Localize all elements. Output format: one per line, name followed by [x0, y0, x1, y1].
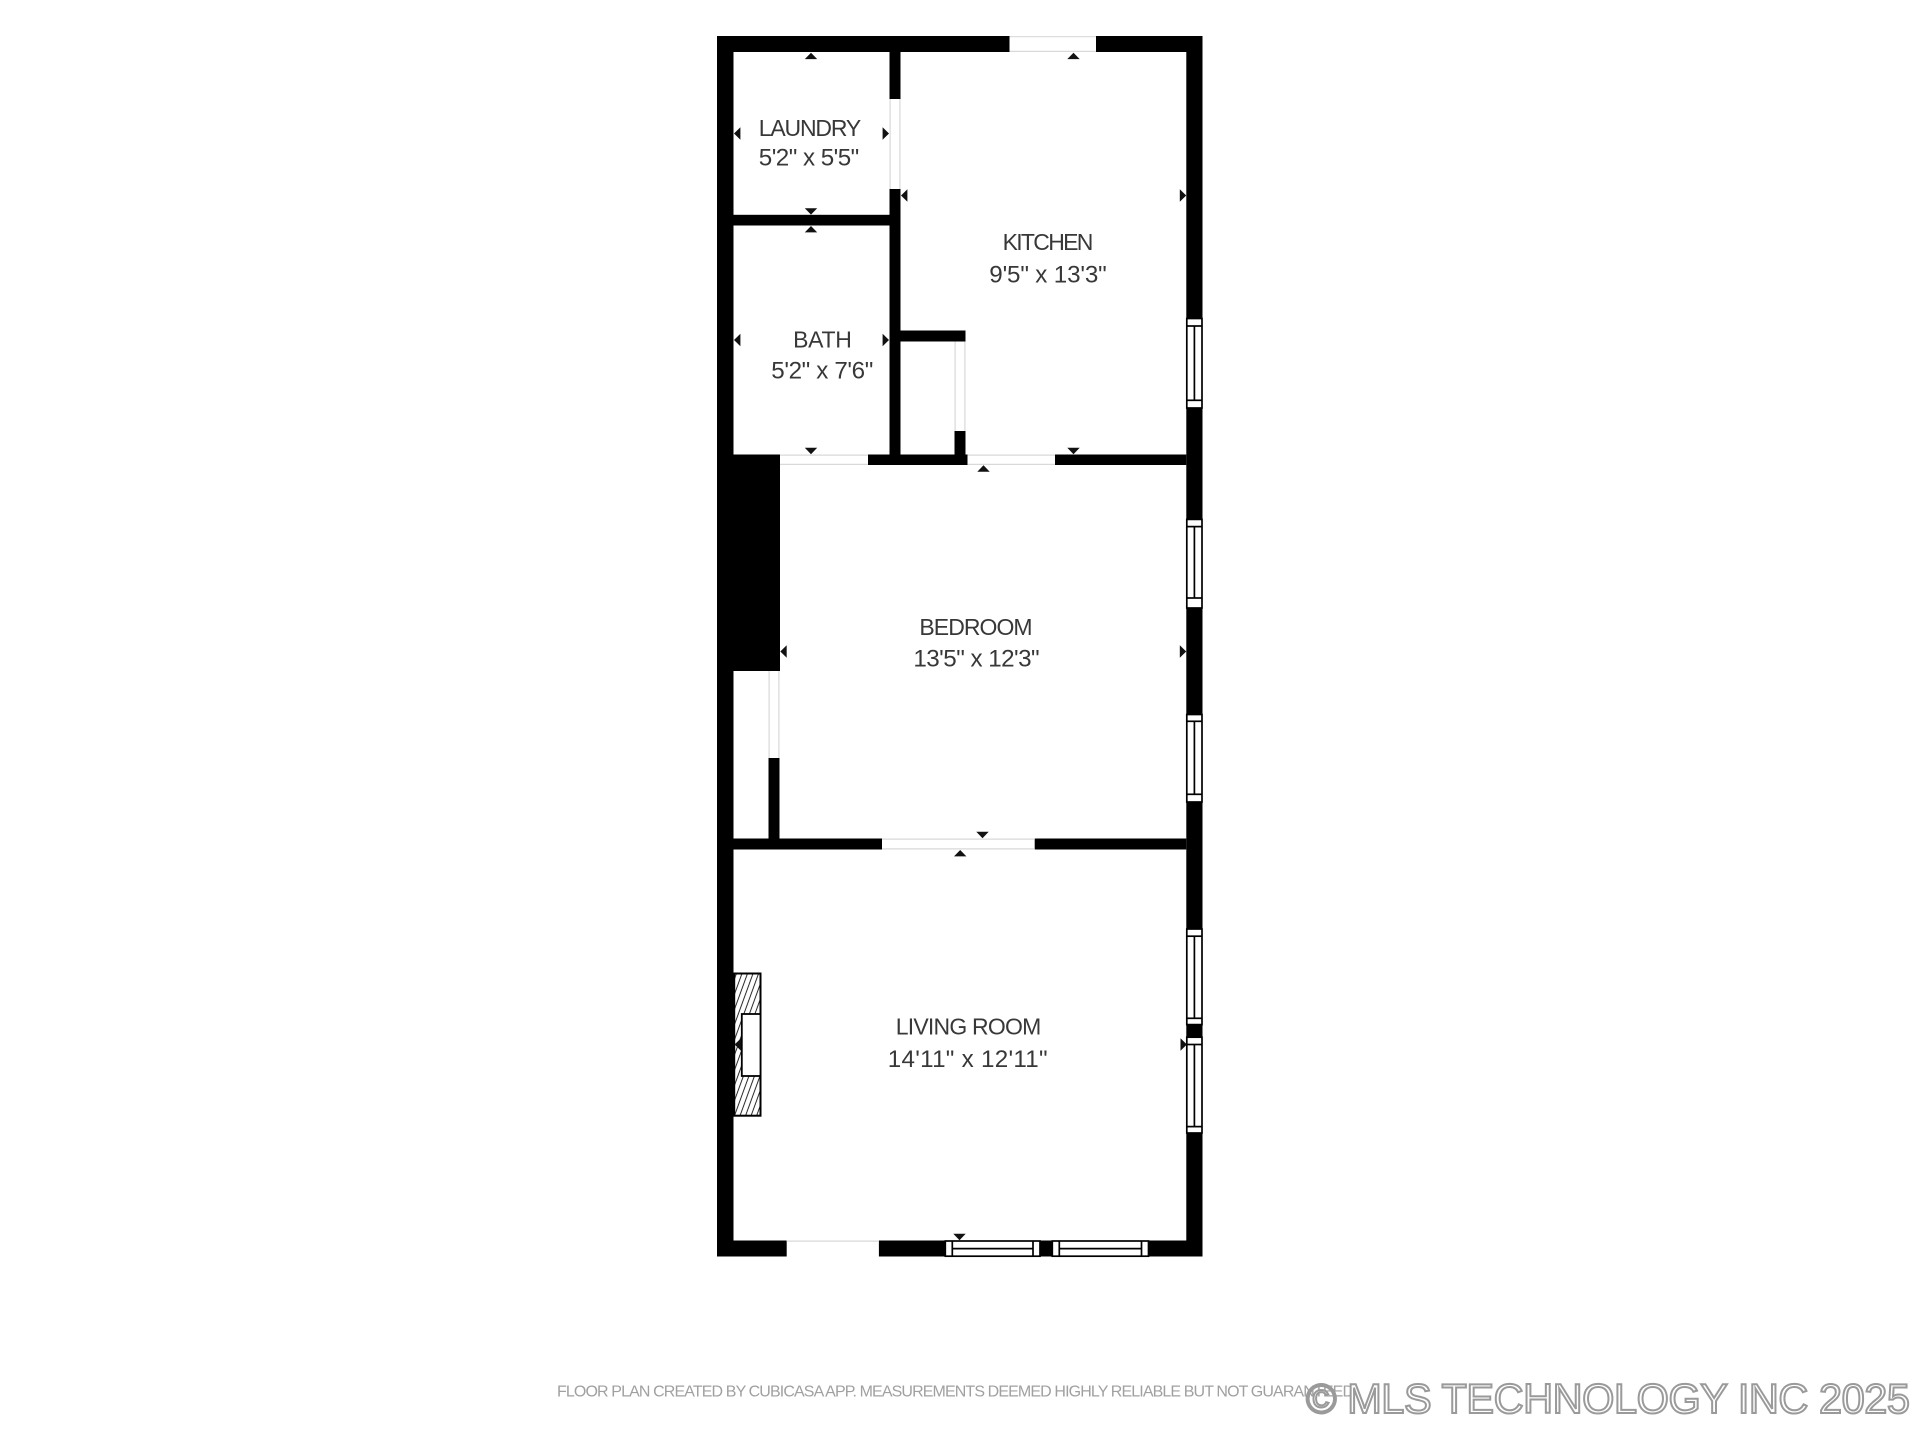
svg-text:BATH: BATH	[793, 326, 852, 352]
svg-text:LAUNDRY: LAUNDRY	[759, 115, 862, 141]
svg-text:KITCHEN: KITCHEN	[1003, 229, 1094, 255]
svg-text:14'11" x 12'11": 14'11" x 12'11"	[888, 1046, 1048, 1073]
svg-text:BEDROOM: BEDROOM	[919, 614, 1032, 640]
svg-text:LIVING ROOM: LIVING ROOM	[896, 1013, 1042, 1039]
svg-text:FLOOR PLAN CREATED BY CUBICASA: FLOOR PLAN CREATED BY CUBICASA APP. MEAS…	[557, 1384, 1354, 1401]
svg-text:13'5" x 12'3": 13'5" x 12'3"	[913, 646, 1039, 673]
svg-text:© MLS TECHNOLOGY INC 2025: © MLS TECHNOLOGY INC 2025	[1306, 1375, 1910, 1422]
svg-text:5'2" x 7'6": 5'2" x 7'6"	[771, 357, 873, 384]
svg-text:5'2" x 5'5": 5'2" x 5'5"	[759, 144, 859, 171]
svg-text:9'5" x 13'3": 9'5" x 13'3"	[989, 261, 1106, 288]
